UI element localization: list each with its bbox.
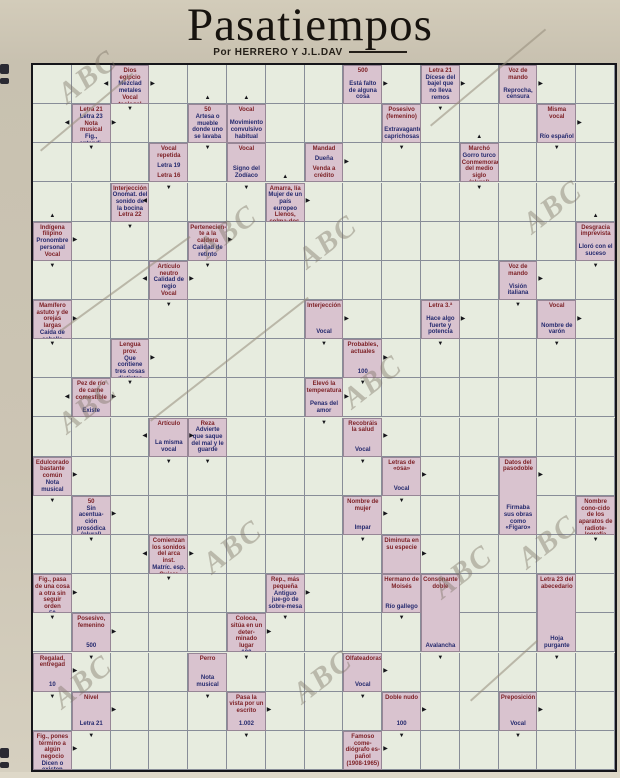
clue-cell: Letra 3.ªHace algo fuerte y potencia (421, 300, 460, 339)
arrow-down-icon: ▼ (243, 655, 249, 661)
grid-cell[interactable] (266, 535, 305, 574)
grid-cell[interactable] (576, 300, 615, 339)
puzzle-board[interactable]: Dios egipcioMezclad metalesVocal teologa… (31, 63, 617, 772)
arrow-down-icon: ▼ (399, 733, 405, 739)
grid-cell[interactable] (537, 65, 576, 104)
grid-cell[interactable] (72, 457, 111, 496)
grid-cell[interactable] (460, 535, 499, 574)
page-header: Pasatiempos Por HERRERO Y J.L.DAV (0, 0, 620, 58)
grid-cell[interactable] (460, 222, 499, 261)
grid-cell[interactable] (149, 496, 188, 535)
grid-cell[interactable] (266, 653, 305, 692)
arrow-down-icon: ▼ (205, 459, 211, 465)
grid-cell[interactable] (576, 104, 615, 143)
clue-cell: Doble nudo100 (382, 692, 421, 731)
arrow-right-icon: ▶ (461, 81, 466, 87)
grid-cell[interactable] (576, 613, 615, 652)
grid-cell[interactable] (72, 222, 111, 261)
grid-cell[interactable] (149, 653, 188, 692)
grid-cell[interactable] (149, 378, 188, 417)
grid-cell[interactable] (266, 300, 305, 339)
grid-cell[interactable] (111, 692, 150, 731)
arrow-up-icon: ▲ (49, 213, 55, 219)
arrow-right-icon: ▶ (383, 355, 388, 361)
grid-cell[interactable] (72, 574, 111, 613)
grid-cell[interactable] (266, 418, 305, 457)
grid-cell[interactable] (576, 574, 615, 613)
clue-text: Calidad de retinto (190, 245, 225, 258)
arrow-right-icon: ▶ (73, 472, 78, 478)
arrow-left-icon: ◀ (65, 394, 70, 400)
clue-text: Avalancha (423, 643, 458, 650)
clue-text: Amarra, lía (268, 186, 303, 193)
clue-text: Dícese del bajel que no lleva remos (423, 75, 458, 102)
grid-cell[interactable] (149, 339, 188, 378)
grid-cell[interactable] (460, 261, 499, 300)
clue-cell: Elevó la temperaturaPenas del amor (305, 378, 344, 417)
grid-cell[interactable] (576, 143, 615, 182)
grid-cell[interactable] (460, 613, 499, 652)
grid-cell[interactable] (499, 222, 538, 261)
grid-cell[interactable] (305, 574, 344, 613)
clue-cell: Posesivo, femenino500 (72, 613, 111, 652)
clue-text: Dios egipcio (113, 68, 148, 81)
grid-cell[interactable] (576, 418, 615, 457)
clue-cell: Diminuta en su especie (382, 535, 421, 574)
grid-cell[interactable] (188, 535, 227, 574)
clue-text: Vocal (307, 329, 342, 336)
grid-cell[interactable] (33, 418, 72, 457)
clue-text: Antiguo jue-go de sobre-mesa (268, 591, 303, 611)
grid-cell[interactable] (343, 222, 382, 261)
clue-cell: ArtículoLa misma vocal (149, 418, 188, 457)
grid-cell[interactable] (266, 457, 305, 496)
clue-text: Fig., pones término a algún negocio (35, 734, 70, 761)
grid-cell[interactable] (72, 183, 111, 222)
clue-text: 500 (345, 68, 380, 75)
clue-cell: Mamífero astuto y de orejas largasCaída … (33, 300, 72, 339)
clue-text: Perro (190, 656, 225, 663)
grid-cell[interactable] (305, 222, 344, 261)
arrow-down-icon: ▼ (49, 341, 55, 347)
grid-cell[interactable] (266, 65, 305, 104)
clue-cell: VocalNombre de varón (537, 300, 576, 339)
grid-cell[interactable] (149, 692, 188, 731)
arrow-right-icon: ▶ (577, 316, 582, 322)
clue-text: Movimiento convulsivo habitual (229, 120, 264, 140)
clue-text: Río español (539, 134, 574, 141)
grid-cell[interactable] (382, 183, 421, 222)
binding-mark (0, 64, 9, 74)
arrow-down-icon: ▼ (515, 733, 521, 739)
grid-cell[interactable] (188, 183, 227, 222)
grid-cell[interactable] (33, 65, 72, 104)
grid-cell[interactable] (460, 418, 499, 457)
clue-text: Vocal repetida (151, 146, 186, 159)
clue-text: Quiere (151, 572, 186, 575)
grid-cell[interactable] (305, 104, 344, 143)
binding-mark (0, 78, 9, 84)
clue-text: Vocal (345, 447, 380, 454)
grid-cell[interactable] (188, 574, 227, 613)
grid-cell[interactable] (266, 692, 305, 731)
grid-cell[interactable] (343, 300, 382, 339)
grid-cell[interactable] (227, 496, 266, 535)
grid-cell[interactable] (149, 65, 188, 104)
clue-text: Diminuta en su especie (384, 538, 419, 551)
grid-cell[interactable] (188, 300, 227, 339)
arrow-down-icon: ▼ (476, 185, 482, 191)
grid-cell[interactable] (576, 378, 615, 417)
clue-text: Vocal teologal (113, 95, 148, 104)
clue-text: Mezclad metales (113, 81, 148, 94)
arrow-right-icon: ▶ (344, 316, 349, 322)
clue-text: Voz de mando (501, 264, 536, 277)
clue-text: Lengua prov. (113, 342, 148, 355)
grid-cell[interactable] (227, 261, 266, 300)
clue-text: La misma vocal (151, 440, 186, 453)
arrow-down-icon: ▼ (593, 263, 599, 269)
grid-cell[interactable] (149, 222, 188, 261)
arrow-down-icon: ▼ (205, 145, 211, 151)
grid-cell[interactable] (460, 574, 499, 613)
grid-cell[interactable] (460, 65, 499, 104)
arrow-down-icon: ▼ (166, 459, 172, 465)
clue-cell: NivelLetra 21 (72, 692, 111, 731)
arrow-right-icon: ▶ (228, 237, 233, 243)
arrow-down-icon: ▼ (515, 302, 521, 308)
clue-text: Letra 16 (151, 173, 186, 180)
arrow-right-icon: ▶ (189, 276, 194, 282)
grid-cell[interactable] (499, 613, 538, 652)
clue-text: Río gallego (384, 604, 419, 611)
grid-cell[interactable] (499, 339, 538, 378)
grid-cell[interactable] (266, 378, 305, 417)
grid-cell[interactable] (537, 222, 576, 261)
grid-cell[interactable] (537, 378, 576, 417)
clue-text: Vocal (229, 146, 264, 153)
grid-cell[interactable] (499, 535, 538, 574)
clue-text: Probables, actuales (345, 342, 380, 355)
grid-cell[interactable] (266, 339, 305, 378)
grid-cell[interactable] (460, 653, 499, 692)
arrow-down-icon: ▼ (49, 498, 55, 504)
grid-cell[interactable] (460, 378, 499, 417)
grid-cell[interactable] (382, 261, 421, 300)
clue-cell: Fig., pones término a algún negocioDicen… (33, 731, 72, 770)
grid-cell[interactable] (537, 418, 576, 457)
clue-text: Indígena filipino (35, 225, 70, 238)
clue-cell: Hermano de MoisésRío gallego (382, 574, 421, 613)
grid-cell[interactable] (537, 457, 576, 496)
grid-cell[interactable] (343, 183, 382, 222)
clue-cell: Artículo neutroCalidad de regioVocal (149, 261, 188, 300)
clue-text: Letra 21 (74, 107, 109, 114)
clue-cell: Vocal repetidaLetra 19Letra 16 (149, 143, 188, 182)
arrow-up-icon: ▲ (205, 95, 211, 101)
clue-text: Letra 19 (151, 163, 186, 170)
grid-cell[interactable] (111, 731, 150, 770)
grid-cell[interactable] (576, 339, 615, 378)
arrow-down-icon: ▼ (49, 694, 55, 700)
grid-cell[interactable] (305, 731, 344, 770)
clue-text: Fig., pasa de una cosa a otra sin seguir… (35, 577, 70, 611)
grid-cell[interactable] (421, 418, 460, 457)
byline-rule (349, 51, 407, 53)
clue-cell: Consonante dobleAvalancha (421, 574, 460, 652)
clue-cell: Voz de mandoReprocha, censura (499, 65, 538, 104)
grid-cell[interactable] (266, 261, 305, 300)
grid-cell[interactable] (499, 653, 538, 692)
grid-cell[interactable] (111, 653, 150, 692)
grid-cell[interactable] (382, 65, 421, 104)
clue-text: Nota musical (190, 675, 225, 688)
grid-cell[interactable] (576, 653, 615, 692)
arrow-down-icon: ▼ (282, 615, 288, 621)
arrow-down-icon: ▼ (205, 694, 211, 700)
arrow-left-icon: ◀ (142, 551, 147, 557)
clue-text: Dueña (307, 156, 342, 163)
grid-cell[interactable] (72, 339, 111, 378)
clue-text: Nota musical (35, 480, 70, 493)
grid-cell[interactable] (266, 104, 305, 143)
arrow-right-icon: ▶ (73, 590, 78, 596)
grid-cell[interactable] (149, 731, 188, 770)
grid-cell[interactable] (343, 613, 382, 652)
arrow-right-icon: ▶ (189, 551, 194, 557)
grid-cell[interactable] (111, 143, 150, 182)
grid-cell[interactable] (382, 418, 421, 457)
clue-text: Que contiene tres cosas distintas (113, 356, 148, 379)
clue-text: 100 (345, 369, 380, 376)
clue-text: Vocal (539, 303, 574, 310)
grid-cell[interactable] (305, 653, 344, 692)
grid-cell[interactable] (343, 261, 382, 300)
grid-cell[interactable] (421, 731, 460, 770)
grid-cell[interactable] (460, 339, 499, 378)
grid-cell[interactable] (305, 692, 344, 731)
clue-text: Vocal (501, 721, 536, 728)
arrow-right-icon: ▶ (383, 433, 388, 439)
arrow-right-icon: ▶ (150, 81, 155, 87)
grid-cell[interactable] (421, 143, 460, 182)
grid-cell[interactable] (537, 496, 576, 535)
grid-cell[interactable] (460, 731, 499, 770)
grid-cell[interactable] (576, 692, 615, 731)
clue-cell: Coloca, sitúa en un deter-minado lugar10… (227, 613, 266, 652)
arrow-right-icon: ▶ (189, 433, 194, 439)
page-bottom-edge (0, 772, 620, 778)
arrow-down-icon: ▼ (321, 420, 327, 426)
arrow-right-icon: ▶ (383, 511, 388, 517)
grid-cell[interactable] (266, 496, 305, 535)
grid-cell[interactable] (460, 496, 499, 535)
grid-cell[interactable] (460, 457, 499, 496)
clue-text: Pez de río de carne comestible (74, 381, 109, 401)
grid-cell[interactable] (227, 339, 266, 378)
arrow-right-icon: ▶ (73, 316, 78, 322)
arrow-right-icon: ▶ (267, 629, 272, 635)
grid-cell[interactable] (421, 496, 460, 535)
grid-cell[interactable] (343, 104, 382, 143)
clue-text: Hermano de Moisés (384, 577, 419, 590)
grid-cell[interactable] (421, 261, 460, 300)
grid-cell[interactable] (111, 457, 150, 496)
grid-cell[interactable] (111, 613, 150, 652)
clue-text: Penas del amor (307, 401, 342, 414)
clue-cell: Pez de río de carne comestibleExiste (72, 378, 111, 417)
grid-cell[interactable] (149, 613, 188, 652)
grid-cell[interactable] (460, 300, 499, 339)
grid-cell[interactable] (266, 222, 305, 261)
grid-cell[interactable] (382, 378, 421, 417)
clue-text: Hace algo fuerte y potencia (423, 316, 458, 336)
grid-cell[interactable] (33, 143, 72, 182)
grid-cell[interactable] (499, 143, 538, 182)
grid-cell[interactable] (499, 574, 538, 613)
clue-text: Dicen o existen (35, 761, 70, 770)
clue-text: Posesivo, femenino (74, 616, 109, 629)
grid-cell[interactable] (188, 731, 227, 770)
grid-cell[interactable] (188, 613, 227, 652)
grid-cell[interactable] (537, 183, 576, 222)
grid-cell[interactable] (499, 183, 538, 222)
clue-text: 50 (190, 107, 225, 114)
clue-cell: Dios egipcioMezclad metalesVocal teologa… (111, 65, 150, 104)
binding-mark (0, 748, 9, 758)
clue-cell: RezaAdvierte que saque del mal y le guar… (188, 418, 227, 457)
grid-cell[interactable] (421, 378, 460, 417)
grid-cell[interactable] (382, 653, 421, 692)
grid-cell[interactable] (227, 457, 266, 496)
arrow-down-icon: ▼ (127, 380, 133, 386)
arrow-down-icon: ▼ (243, 185, 249, 191)
grid-cell[interactable] (421, 222, 460, 261)
clue-text: Lloró con el suceso (578, 244, 613, 257)
grid-cell[interactable] (305, 613, 344, 652)
grid-cell[interactable] (227, 418, 266, 457)
clue-text: Signo del Zodíaco (229, 166, 264, 179)
arrow-right-icon: ▶ (383, 668, 388, 674)
grid-cell[interactable] (111, 574, 150, 613)
clue-cell: Nombre cono-cido de los aparatos de radi… (576, 496, 615, 535)
arrow-right-icon: ▶ (461, 316, 466, 322)
clue-cell: Regalad, entregad10 (33, 653, 72, 692)
grid-cell[interactable] (382, 339, 421, 378)
grid-cell[interactable] (72, 261, 111, 300)
clue-text: Vocal (35, 252, 70, 259)
clue-text: Llenos, colma-dos, totales (268, 212, 303, 221)
grid-cell[interactable] (149, 104, 188, 143)
arrow-down-icon: ▼ (88, 145, 94, 151)
grid-cell[interactable] (305, 535, 344, 574)
clue-text: Preposición (501, 695, 536, 702)
clue-cell: 50Artesa o mueble donde uno se lavaba (188, 104, 227, 143)
grid-cell[interactable] (460, 692, 499, 731)
grid-cell[interactable] (188, 378, 227, 417)
grid-cell[interactable] (188, 339, 227, 378)
grid-cell[interactable] (537, 731, 576, 770)
arrow-down-icon: ▼ (360, 694, 366, 700)
clue-text: Consonante doble (423, 577, 458, 590)
clue-cell: Famoso come-diógrafo es-pañol (1908-1965… (343, 731, 382, 770)
clue-text: Olfateadoras (345, 656, 380, 663)
arrow-left-icon: ◀ (142, 198, 147, 204)
grid-cell[interactable] (111, 496, 150, 535)
clue-text: Recobráis la salud (345, 421, 380, 434)
grid-cell[interactable] (111, 300, 150, 339)
grid-cell[interactable] (305, 261, 344, 300)
arrow-right-icon: ▶ (73, 668, 78, 674)
grid-cell[interactable] (305, 457, 344, 496)
grid-cell[interactable] (227, 300, 266, 339)
clue-text: Artículo neutro (151, 264, 186, 277)
grid-cell[interactable] (305, 496, 344, 535)
grid-cell[interactable] (382, 222, 421, 261)
grid-cell[interactable] (305, 65, 344, 104)
grid-cell[interactable] (188, 496, 227, 535)
arrow-right-icon: ▶ (112, 707, 117, 713)
clue-text: Fig., entendi-miento, seso (74, 134, 109, 143)
arrow-down-icon: ▼ (554, 341, 560, 347)
clue-text: Letra 23 (74, 114, 109, 121)
clue-text: Pasa la vista por un escrito (229, 695, 264, 715)
grid-cell[interactable] (499, 418, 538, 457)
clue-cell: MarchóGorro turcoConmemoración del medio… (460, 143, 499, 182)
grid-cell[interactable] (33, 535, 72, 574)
grid-cell[interactable] (537, 692, 576, 731)
clue-cell: Letra 21Dícese del bajel que no lleva re… (421, 65, 460, 104)
grid-cell[interactable] (227, 535, 266, 574)
grid-cell[interactable] (382, 300, 421, 339)
clue-cell: Misma vocalRío español (537, 104, 576, 143)
grid-cell[interactable] (421, 183, 460, 222)
arrow-right-icon: ▶ (422, 551, 427, 557)
clue-cell: Datos del pasodobleFirmaba sus obras com… (499, 457, 538, 535)
grid-cell[interactable] (72, 300, 111, 339)
clue-text: Interjección (307, 303, 342, 310)
clue-cell: Lengua prov.Que contiene tres cosas dist… (111, 339, 150, 378)
grid-cell[interactable] (576, 731, 615, 770)
grid-cell[interactable] (266, 731, 305, 770)
clue-text: Artículo (151, 421, 186, 428)
grid-cell[interactable] (537, 535, 576, 574)
grid-cell[interactable] (227, 574, 266, 613)
clue-text: 50 (35, 611, 70, 614)
grid-cell[interactable] (499, 104, 538, 143)
arrow-right-icon: ▶ (267, 707, 272, 713)
clue-text: Letras de «osa» (384, 460, 419, 473)
grid-cell[interactable] (305, 183, 344, 222)
clue-text: Venda a crédito (307, 166, 342, 179)
grid-cell[interactable] (343, 143, 382, 182)
grid-cell[interactable] (227, 378, 266, 417)
grid-cell[interactable] (499, 378, 538, 417)
clue-text: Nombre de varón (539, 323, 574, 336)
arrow-down-icon: ▼ (437, 341, 443, 347)
grid-cell[interactable] (576, 65, 615, 104)
arrow-right-icon: ▶ (383, 746, 388, 752)
grid-cell[interactable] (576, 457, 615, 496)
clue-text: Datos del pasodoble (501, 460, 536, 473)
clue-cell: 50Sin acentua-ción prosódica (plural)Mat… (72, 496, 111, 535)
grid-cell[interactable] (343, 574, 382, 613)
clue-text: Letra 3.ª (423, 303, 458, 310)
clue-text: Reza (190, 421, 225, 428)
grid-cell[interactable] (537, 261, 576, 300)
clue-text: Mujer de un país europeo (268, 192, 303, 212)
grid-cell[interactable] (72, 418, 111, 457)
